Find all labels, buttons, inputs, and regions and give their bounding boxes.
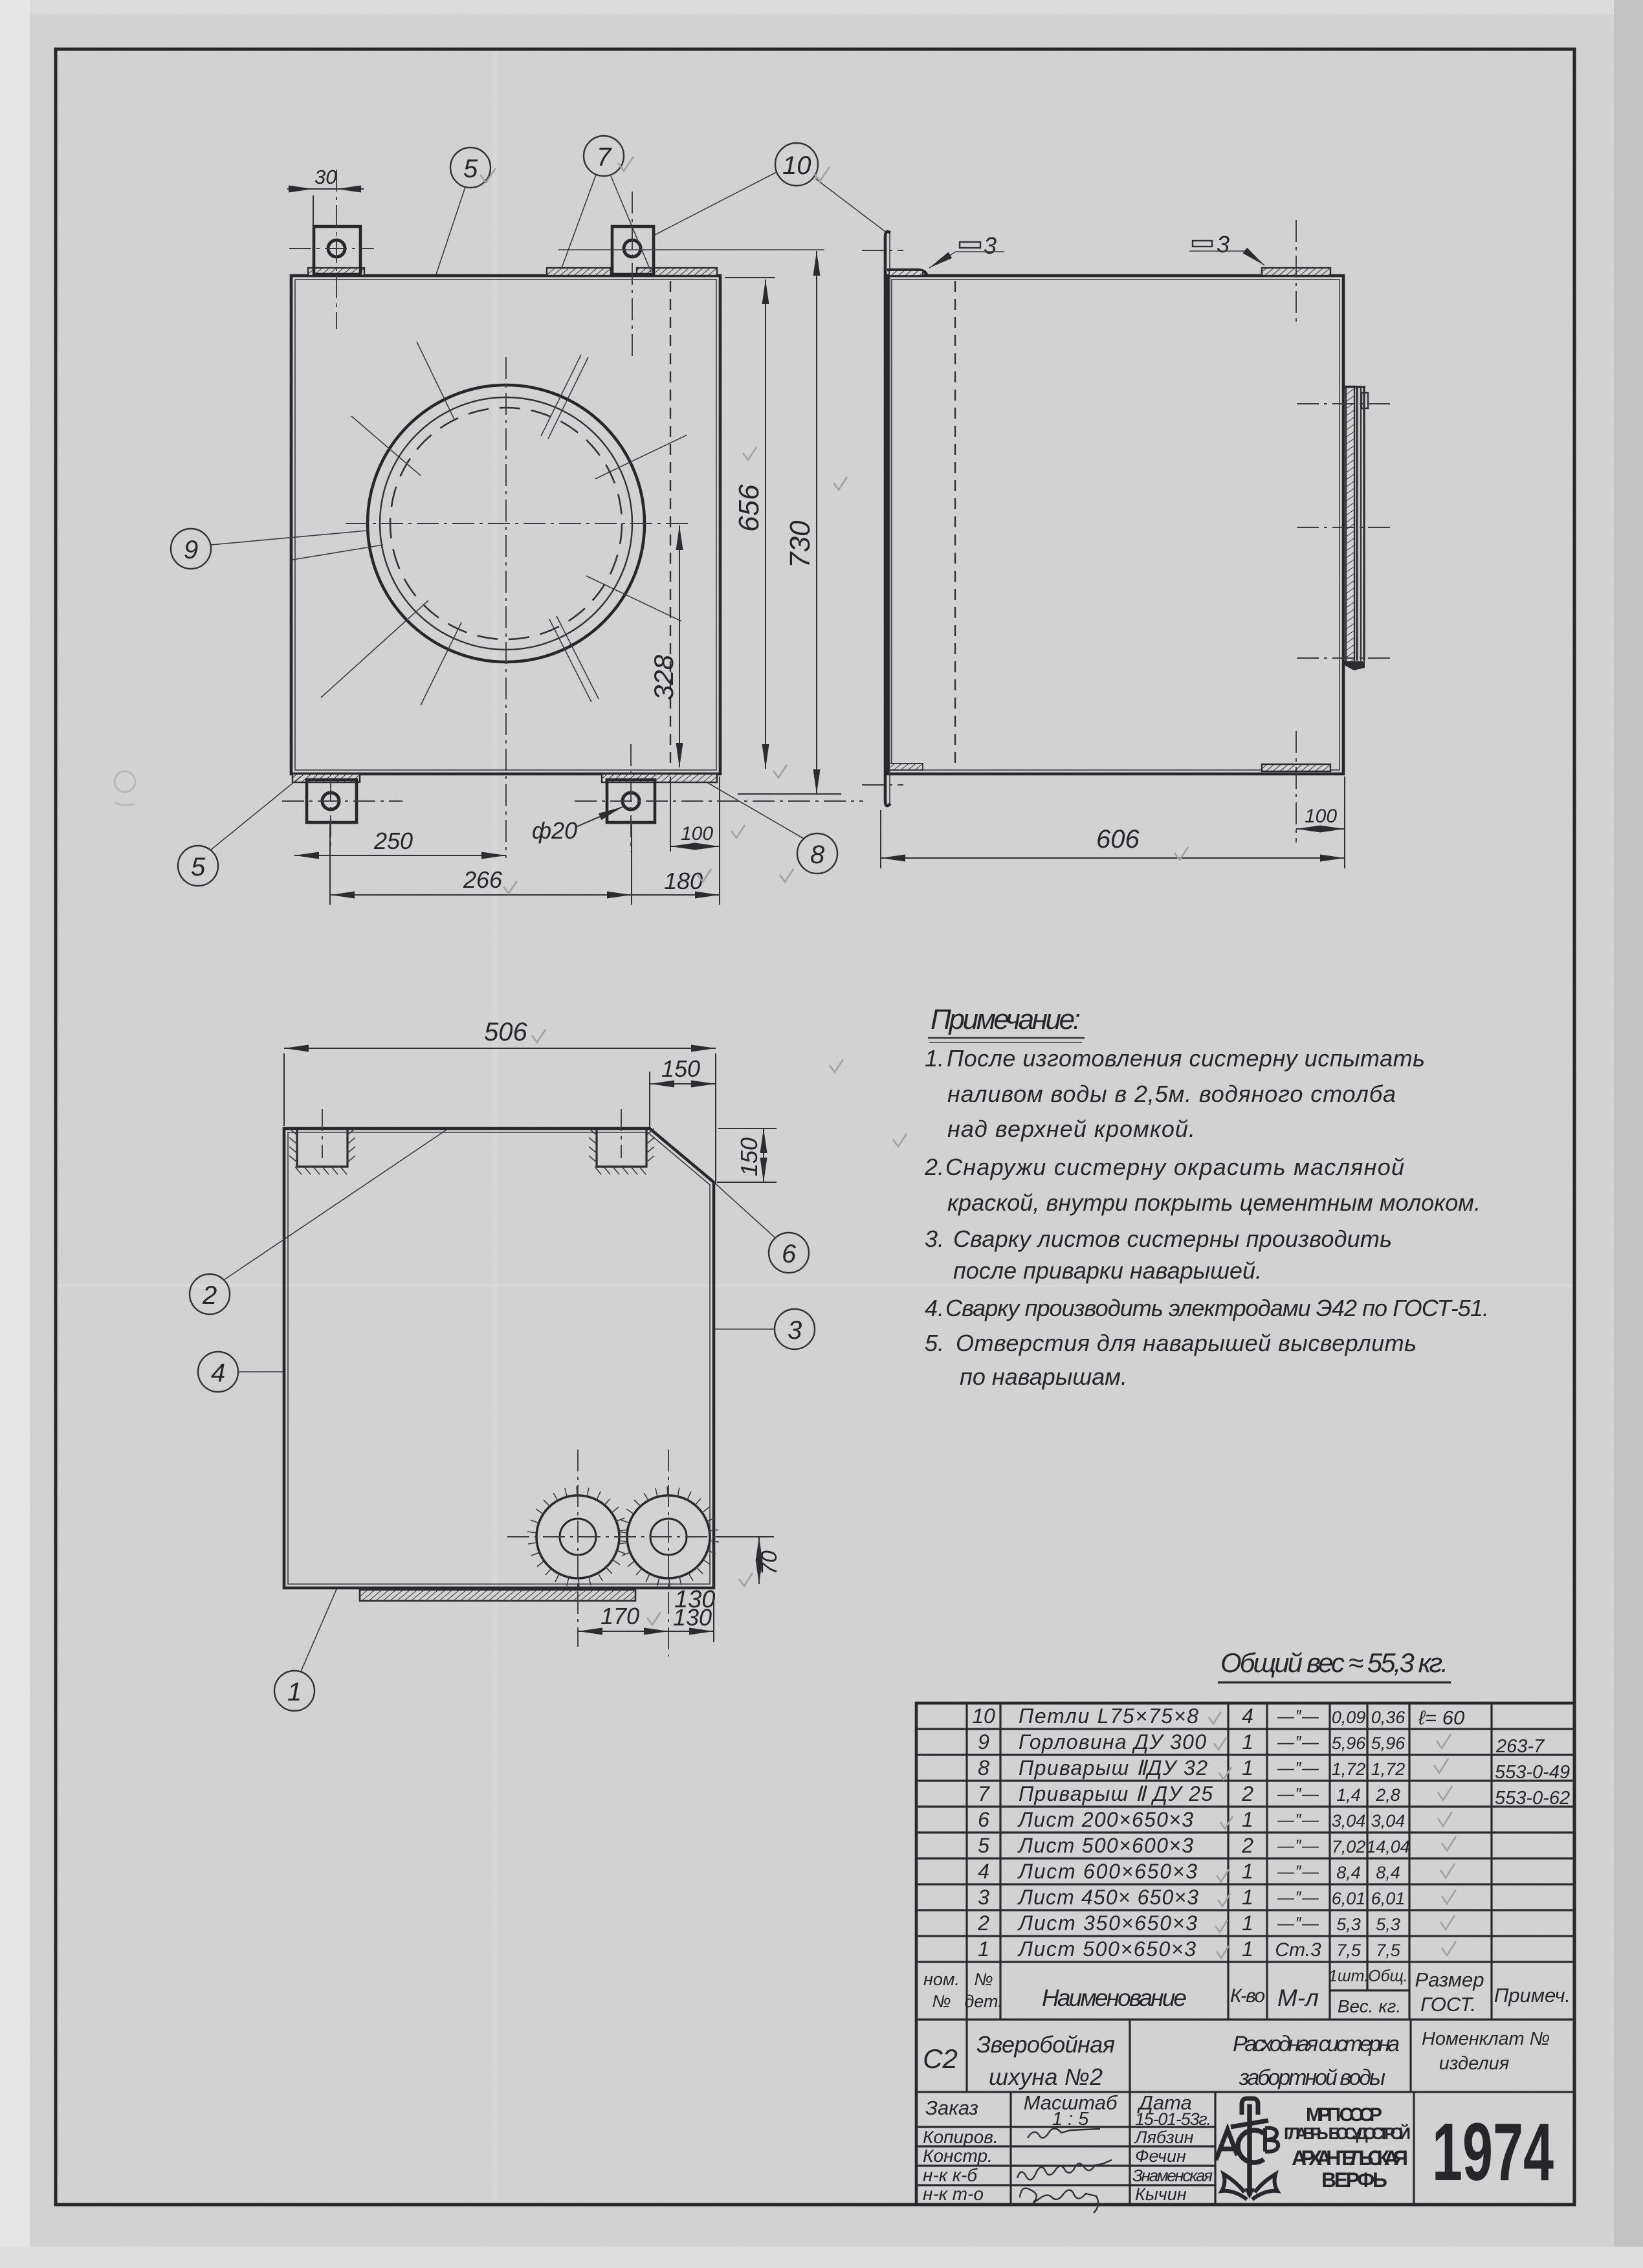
svg-text:Ст.3: Ст.3 xyxy=(1275,1939,1321,1961)
svg-text:730: 730 xyxy=(784,520,816,568)
svg-text:Знаменская: Знаменская xyxy=(1132,2166,1213,2185)
svg-text:4.: 4. xyxy=(925,1295,944,1321)
svg-text:6: 6 xyxy=(782,1240,797,1268)
svg-text:шхуна №2: шхуна №2 xyxy=(989,2064,1103,2090)
svg-text:100: 100 xyxy=(1305,806,1337,827)
svg-text:1 : 5: 1 : 5 xyxy=(1052,2109,1089,2130)
svg-text:6,01: 6,01 xyxy=(1332,1889,1366,1908)
svg-text:№: № xyxy=(974,1970,993,1989)
svg-text:3,04: 3,04 xyxy=(1371,1811,1406,1831)
svg-text:4: 4 xyxy=(1242,1704,1253,1728)
svg-text:—″—: —″— xyxy=(1277,1706,1319,1726)
svg-text:3: 3 xyxy=(984,232,997,259)
svg-text:15-01-53г.: 15-01-53г. xyxy=(1135,2109,1211,2129)
svg-text:ном.: ном. xyxy=(923,1970,960,1989)
svg-text:ГЛАВРЫБОСУДОСТРОЙ: ГЛАВРЫБОСУДОСТРОЙ xyxy=(1284,2124,1411,2143)
svg-text:Горловина ДУ 300: Горловина ДУ 300 xyxy=(1019,1730,1206,1754)
svg-text:над верхней кромкой.: над верхней кромкой. xyxy=(947,1116,1195,1142)
svg-text:Приварыш Ⅱ ДУ 25: Приварыш Ⅱ ДУ 25 xyxy=(1019,1782,1213,1805)
svg-text:Фечин: Фечин xyxy=(1135,2146,1186,2166)
svg-text:0,09: 0,09 xyxy=(1332,1708,1366,1727)
svg-text:Вес. кг.: Вес. кг. xyxy=(1338,1996,1401,2016)
svg-text:1: 1 xyxy=(1242,1911,1253,1935)
svg-text:1,72: 1,72 xyxy=(1332,1759,1366,1779)
svg-text:263-7: 263-7 xyxy=(1495,1736,1545,1757)
svg-text:7: 7 xyxy=(597,143,612,171)
svg-text:ф20: ф20 xyxy=(532,817,577,844)
svg-text:наливом воды в 2,5м. водян: наливом воды в 2,5м. водяного столба xyxy=(947,1081,1396,1107)
svg-text:3.: 3. xyxy=(925,1226,944,1252)
svg-text:7,5: 7,5 xyxy=(1336,1941,1362,1960)
svg-text:8: 8 xyxy=(978,1756,989,1779)
svg-text:250: 250 xyxy=(373,828,413,854)
svg-text:—″—: —″— xyxy=(1277,1758,1319,1778)
svg-text:1: 1 xyxy=(287,1678,302,1706)
svg-text:изделия: изделия xyxy=(1439,2053,1509,2074)
svg-text:Кычин: Кычин xyxy=(1135,2185,1187,2204)
svg-text:Констр.: Констр. xyxy=(923,2146,993,2166)
svg-text:1: 1 xyxy=(978,1937,989,1961)
svg-text:Примечание:: Примечание: xyxy=(931,1004,1081,1035)
svg-text:Сварку листов систерны прои: Сварку листов систерны производить xyxy=(953,1226,1392,1252)
svg-text:Номенклат №: Номенклат № xyxy=(1422,2029,1550,2049)
svg-text:5,3: 5,3 xyxy=(1336,1915,1361,1934)
svg-text:1: 1 xyxy=(1242,1886,1253,1909)
svg-text:С2: С2 xyxy=(923,2043,958,2074)
svg-text:2: 2 xyxy=(1241,1834,1253,1857)
svg-text:3: 3 xyxy=(788,1316,802,1345)
svg-text:9: 9 xyxy=(184,536,198,564)
svg-text:150: 150 xyxy=(661,1055,700,1082)
svg-text:н-к к-б: н-к к-б xyxy=(923,2165,978,2185)
svg-text:Отверстия для наварышей выс: Отверстия для наварышей высверлить xyxy=(956,1330,1417,1356)
svg-text:3: 3 xyxy=(1217,231,1229,258)
svg-text:5.: 5. xyxy=(925,1330,944,1356)
svg-text:130: 130 xyxy=(674,1586,715,1613)
svg-text:М-л: М-л xyxy=(1277,1985,1319,2011)
svg-text:7: 7 xyxy=(978,1782,990,1805)
svg-text:4: 4 xyxy=(978,1860,989,1883)
svg-text:1.: 1. xyxy=(925,1045,944,1072)
svg-text:10: 10 xyxy=(972,1704,995,1728)
svg-text:100: 100 xyxy=(681,823,713,844)
svg-text:ВЕРФЬ: ВЕРФЬ xyxy=(1321,2168,1387,2192)
svg-text:Лист 600×650×3: Лист 600×650×3 xyxy=(1017,1860,1197,1883)
svg-text:553-0-62: 553-0-62 xyxy=(1495,1788,1570,1809)
svg-text:Лябзин: Лябзин xyxy=(1134,2128,1194,2147)
svg-text:по наварышам.: по наварышам. xyxy=(960,1363,1127,1390)
svg-text:Размер: Размер xyxy=(1415,1968,1484,1991)
svg-text:5,96: 5,96 xyxy=(1332,1734,1367,1753)
svg-text:Сварку производить электрода: Сварку производить электродами Э42 по ГО… xyxy=(945,1295,1489,1321)
svg-text:Зверобойная: Зверобойная xyxy=(976,2031,1115,2058)
svg-text:К-во: К-во xyxy=(1230,1985,1265,2007)
svg-text:Петли L75×75×8: Петли L75×75×8 xyxy=(1019,1704,1198,1728)
svg-text:Лист 350×650×3: Лист 350×650×3 xyxy=(1017,1911,1197,1935)
svg-text:МРП-СССР: МРП-СССР xyxy=(1306,2104,1382,2126)
svg-text:6,01: 6,01 xyxy=(1371,1889,1406,1908)
svg-text:5,96: 5,96 xyxy=(1371,1734,1406,1753)
svg-text:606: 606 xyxy=(1096,825,1140,853)
svg-text:14,04: 14,04 xyxy=(1366,1837,1410,1856)
svg-text:краской, внутри покрыть цеме: краской, внутри покрыть цементным молоко… xyxy=(947,1189,1481,1216)
svg-text:Примеч.: Примеч. xyxy=(1494,1984,1571,2007)
svg-text:Приварыш ⅡДУ 32: Приварыш ⅡДУ 32 xyxy=(1019,1756,1207,1779)
svg-text:7,5: 7,5 xyxy=(1376,1941,1401,1960)
svg-text:После изготовления систерну: После изготовления систерну испытать xyxy=(947,1045,1425,1072)
svg-text:553-0-49: 553-0-49 xyxy=(1495,1762,1570,1783)
svg-text:8,4: 8,4 xyxy=(1376,1863,1400,1882)
svg-text:3,04: 3,04 xyxy=(1332,1811,1366,1831)
svg-text:ГОСТ.: ГОСТ. xyxy=(1420,1993,1476,2016)
svg-text:2.: 2. xyxy=(924,1154,944,1180)
svg-text:—″—: —″— xyxy=(1277,1810,1319,1829)
svg-text:2: 2 xyxy=(1241,1782,1253,1805)
svg-text:30: 30 xyxy=(314,166,336,188)
svg-text:5,3: 5,3 xyxy=(1376,1915,1400,1934)
svg-text:328: 328 xyxy=(648,654,679,700)
svg-text:дет.: дет. xyxy=(964,1992,1002,2011)
svg-text:1974: 1974 xyxy=(1432,2106,1554,2197)
svg-text:№: № xyxy=(932,1992,951,2011)
svg-text:Наименование: Наименование xyxy=(1042,1985,1187,2011)
svg-text:Общ.: Общ. xyxy=(1368,1967,1408,1985)
svg-text:—″—: —″— xyxy=(1277,1732,1319,1752)
svg-text:150: 150 xyxy=(736,1138,762,1176)
svg-text:266: 266 xyxy=(463,866,503,893)
svg-text:Лист 500×600×3: Лист 500×600×3 xyxy=(1017,1834,1193,1857)
svg-text:1: 1 xyxy=(1242,1730,1253,1754)
svg-text:1,72: 1,72 xyxy=(1371,1759,1406,1779)
svg-text:1шт.: 1шт. xyxy=(1329,1967,1369,1985)
svg-text:Снаружи систерну окрасить м: Снаружи систерну окрасить масляной xyxy=(945,1154,1404,1180)
svg-text:—″—: —″— xyxy=(1277,1784,1319,1803)
svg-text:после приварки наварышей.: после приварки наварышей. xyxy=(953,1257,1262,1284)
svg-text:2,8: 2,8 xyxy=(1375,1785,1400,1805)
svg-text:ℓ= 60: ℓ= 60 xyxy=(1418,1706,1464,1729)
svg-text:5: 5 xyxy=(463,155,478,183)
svg-text:10: 10 xyxy=(782,151,811,180)
svg-text:656: 656 xyxy=(733,484,765,532)
svg-text:—″—: —″— xyxy=(1277,1836,1319,1855)
svg-text:—″—: —″— xyxy=(1277,1888,1319,1907)
svg-text:н-к т-о: н-к т-о xyxy=(923,2184,984,2204)
svg-text:Лист 200×650×3: Лист 200×650×3 xyxy=(1017,1808,1193,1831)
svg-text:8,4: 8,4 xyxy=(1336,1863,1361,1882)
svg-text:5: 5 xyxy=(978,1834,989,1857)
svg-text:180: 180 xyxy=(664,868,703,894)
svg-text:1: 1 xyxy=(1242,1860,1253,1883)
svg-text:4: 4 xyxy=(211,1359,225,1387)
svg-text:Копиров.: Копиров. xyxy=(923,2127,998,2147)
svg-text:—″—: —″— xyxy=(1277,1913,1319,1933)
svg-text:2: 2 xyxy=(202,1281,217,1310)
svg-text:1: 1 xyxy=(1242,1756,1253,1779)
svg-text:Общий вес ≈ 55,3 кг.: Общий вес ≈ 55,3 кг. xyxy=(1220,1647,1448,1678)
svg-text:5: 5 xyxy=(191,853,206,881)
svg-text:9: 9 xyxy=(978,1730,989,1754)
svg-text:забортной воды: забортной воды xyxy=(1239,2065,1385,2090)
svg-text:3: 3 xyxy=(978,1886,989,1909)
svg-text:АРХАНГЕЛЬСКАЯ: АРХАНГЕЛЬСКАЯ xyxy=(1292,2146,1408,2170)
svg-text:1: 1 xyxy=(1242,1808,1253,1831)
svg-text:Расходная систерна: Расходная систерна xyxy=(1233,2032,1400,2056)
svg-text:—″—: —″— xyxy=(1277,1862,1319,1881)
svg-text:Заказ: Заказ xyxy=(925,2097,978,2119)
svg-text:8: 8 xyxy=(810,841,825,869)
svg-text:Лист 450× 650×3: Лист 450× 650×3 xyxy=(1017,1886,1198,1909)
svg-text:70: 70 xyxy=(757,1550,782,1575)
svg-text:506: 506 xyxy=(484,1018,527,1046)
svg-text:6: 6 xyxy=(978,1808,989,1831)
svg-text:Лист 500×650×3: Лист 500×650×3 xyxy=(1017,1937,1196,1961)
svg-text:1: 1 xyxy=(1242,1937,1253,1961)
svg-text:2: 2 xyxy=(977,1911,989,1935)
svg-text:0,36: 0,36 xyxy=(1371,1708,1406,1727)
svg-text:170: 170 xyxy=(601,1603,639,1629)
svg-text:1,4: 1,4 xyxy=(1336,1785,1361,1805)
svg-text:7,02: 7,02 xyxy=(1332,1837,1366,1856)
